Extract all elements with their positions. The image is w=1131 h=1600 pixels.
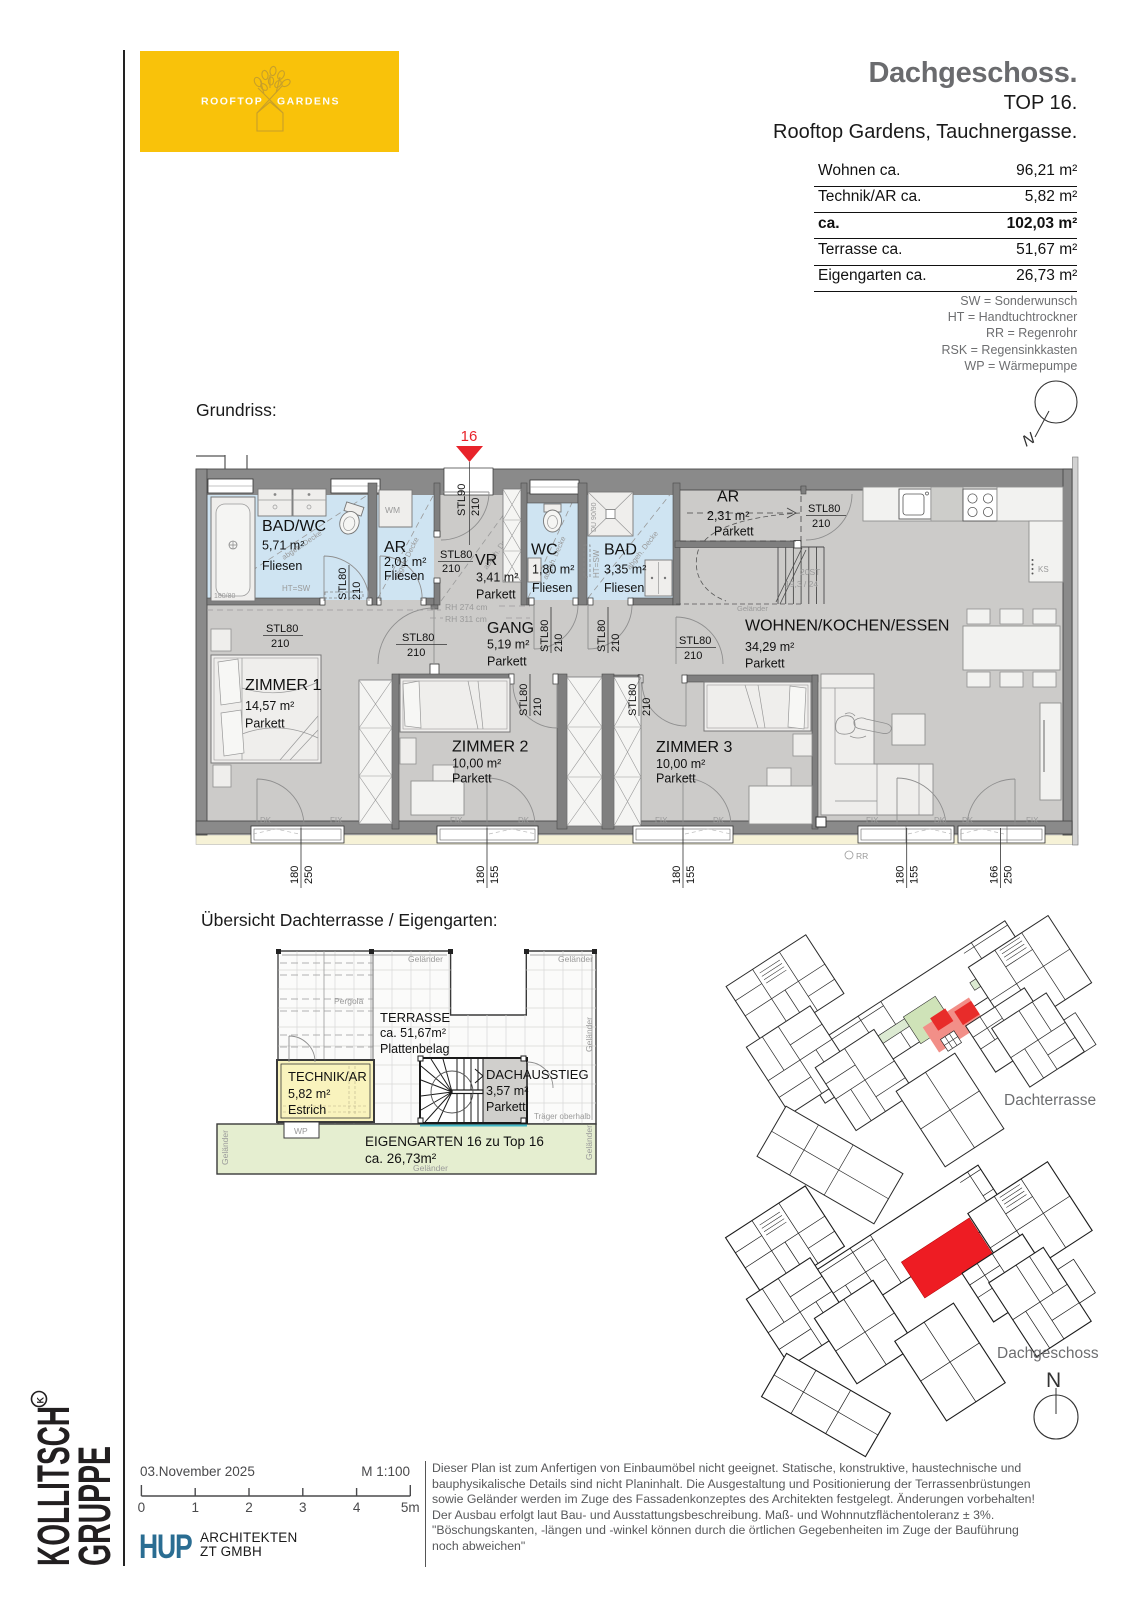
- svg-text:FIX: FIX: [450, 816, 463, 825]
- svg-text:STL90: STL90: [456, 484, 468, 516]
- svg-text:STL80: STL80: [337, 568, 349, 600]
- svg-text:STL80: STL80: [266, 623, 298, 635]
- svg-text:166: 166: [989, 866, 1001, 884]
- svg-text:155: 155: [909, 866, 921, 884]
- svg-text:STL80: STL80: [808, 503, 840, 515]
- svg-text:GRUPPE: GRUPPE: [69, 1446, 120, 1566]
- svg-text:AR: AR: [384, 539, 406, 556]
- svg-text:180: 180: [289, 866, 301, 884]
- svg-text:AR: AR: [717, 489, 739, 506]
- svg-text:250: 250: [303, 866, 315, 884]
- svg-text:STL80: STL80: [596, 620, 608, 652]
- svg-text:10,00 m²: 10,00 m²: [656, 757, 705, 771]
- svg-text:DK: DK: [518, 816, 530, 825]
- svg-text:STL80: STL80: [402, 632, 434, 644]
- svg-text:VR: VR: [475, 552, 497, 569]
- svg-text:BAD/WC: BAD/WC: [262, 518, 326, 535]
- svg-text:Parkett: Parkett: [245, 717, 285, 731]
- svg-text:N: N: [1020, 430, 1039, 451]
- svg-text:155: 155: [685, 866, 697, 884]
- svg-text:STL80: STL80: [627, 684, 639, 716]
- svg-text:180/80: 180/80: [214, 593, 236, 600]
- svg-text:Plattenbelag: Plattenbelag: [380, 1042, 450, 1056]
- svg-text:FIX: FIX: [866, 816, 879, 825]
- svg-text:DACHAUSSTIEG: DACHAUSSTIEG: [486, 1067, 589, 1082]
- svg-text:WP: WP: [294, 1126, 308, 1136]
- svg-text:Parkett: Parkett: [452, 772, 492, 786]
- svg-text:HT=SW: HT=SW: [592, 549, 601, 578]
- svg-text:Geländer: Geländer: [584, 1017, 594, 1052]
- svg-text:WM: WM: [385, 505, 400, 515]
- svg-text:Parkett: Parkett: [486, 1100, 526, 1114]
- svg-text:210: 210: [532, 698, 544, 716]
- svg-text:1: 1: [191, 1500, 199, 1515]
- svg-text:250: 250: [1003, 866, 1015, 884]
- svg-text:5,82 m²: 5,82 m²: [288, 1087, 330, 1101]
- svg-text:Estrich: Estrich: [288, 1103, 326, 1117]
- svg-text:FIX: FIX: [1026, 816, 1039, 825]
- svg-text:2,01 m²: 2,01 m²: [384, 555, 426, 569]
- svg-text:Pergola: Pergola: [334, 996, 364, 1006]
- svg-text:ZIMMER 1: ZIMMER 1: [245, 677, 322, 694]
- svg-text:FIX: FIX: [655, 816, 668, 825]
- svg-text:K: K: [36, 1397, 46, 1404]
- svg-text:210: 210: [812, 518, 830, 530]
- svg-text:0: 0: [138, 1500, 145, 1515]
- svg-text:210: 210: [610, 634, 622, 652]
- svg-text:5,19 m²: 5,19 m²: [487, 638, 529, 652]
- svg-text:DK: DK: [260, 816, 272, 825]
- svg-text:DK: DK: [934, 816, 946, 825]
- svg-text:3: 3: [299, 1500, 307, 1515]
- svg-text:Fliesen: Fliesen: [262, 559, 302, 573]
- svg-text:16: 16: [461, 428, 478, 445]
- svg-text:210: 210: [470, 498, 482, 516]
- svg-text:2,31 m²: 2,31 m²: [707, 509, 749, 523]
- svg-text:EIGENGARTEN 16 zu Top 16: EIGENGARTEN 16 zu Top 16: [365, 1134, 544, 1149]
- svg-text:14,57 m²: 14,57 m²: [245, 699, 294, 713]
- svg-text:RR: RR: [856, 851, 868, 861]
- svg-text:Parkett: Parkett: [656, 772, 696, 786]
- svg-text:Geländer: Geländer: [413, 1163, 448, 1173]
- svg-text:19,3 / 24: 19,3 / 24: [785, 579, 818, 589]
- svg-text:180: 180: [671, 866, 683, 884]
- svg-text:DK: DK: [962, 816, 974, 825]
- svg-text:10,00 m²: 10,00 m²: [452, 757, 501, 771]
- svg-text:210: 210: [351, 582, 363, 600]
- svg-text:Träger oberhalb: Träger oberhalb: [534, 1112, 591, 1121]
- svg-text:Parkett: Parkett: [745, 657, 785, 671]
- svg-text:210: 210: [271, 638, 289, 650]
- svg-text:STL80: STL80: [539, 620, 551, 652]
- svg-text:GANG: GANG: [487, 620, 534, 637]
- svg-text:4: 4: [353, 1500, 361, 1515]
- svg-text:20ST: 20ST: [800, 567, 820, 577]
- svg-text:ZIMMER 3: ZIMMER 3: [656, 739, 733, 756]
- svg-text:TERRASSE: TERRASSE: [380, 1010, 450, 1025]
- svg-text:ZIMMER 2: ZIMMER 2: [452, 739, 529, 756]
- svg-text:WC: WC: [531, 542, 558, 559]
- svg-text:Geländer: Geländer: [408, 954, 443, 964]
- svg-text:KS: KS: [1038, 565, 1049, 574]
- svg-text:Geländer: Geländer: [584, 1125, 594, 1160]
- svg-text:210: 210: [641, 698, 653, 716]
- svg-text:34,29 m²: 34,29 m²: [745, 640, 794, 654]
- svg-text:HT=SW: HT=SW: [282, 584, 311, 593]
- svg-text:FIX: FIX: [330, 816, 343, 825]
- svg-text:STL80: STL80: [679, 635, 711, 647]
- svg-text:155: 155: [489, 866, 501, 884]
- svg-text:210: 210: [442, 563, 460, 575]
- svg-text:Fliesen: Fliesen: [604, 581, 644, 595]
- svg-text:BAD: BAD: [604, 542, 637, 559]
- svg-text:N: N: [1046, 1369, 1061, 1392]
- svg-text:Fliesen: Fliesen: [532, 581, 572, 595]
- svg-text:Dachgeschoss: Dachgeschoss: [997, 1345, 1099, 1362]
- svg-text:210: 210: [553, 634, 565, 652]
- svg-text:STL80: STL80: [440, 549, 472, 561]
- svg-text:3,41 m²: 3,41 m²: [476, 571, 518, 585]
- svg-text:1,80 m²: 1,80 m²: [532, 563, 574, 577]
- svg-text:Dachterrasse: Dachterrasse: [1004, 1092, 1096, 1109]
- svg-text:DU 90/90: DU 90/90: [591, 502, 598, 532]
- svg-text:Geländer: Geländer: [220, 1130, 230, 1165]
- svg-text:Geländer: Geländer: [558, 954, 593, 964]
- svg-text:5,71 m²: 5,71 m²: [262, 539, 304, 553]
- svg-text:Parkett: Parkett: [487, 655, 527, 669]
- svg-text:3,35 m²: 3,35 m²: [604, 563, 646, 577]
- svg-text:2: 2: [245, 1500, 253, 1515]
- svg-text:210: 210: [407, 647, 425, 659]
- svg-text:Parkett: Parkett: [476, 588, 516, 602]
- svg-text:RH 274 cm: RH 274 cm: [445, 602, 488, 612]
- svg-text:ca. 51,67m²: ca. 51,67m²: [380, 1026, 446, 1040]
- svg-text:180: 180: [475, 866, 487, 884]
- svg-text:5m: 5m: [401, 1500, 420, 1515]
- svg-text:Geländer: Geländer: [737, 604, 768, 613]
- svg-text:WOHNEN/KOCHEN/ESSEN: WOHNEN/KOCHEN/ESSEN: [745, 618, 949, 635]
- svg-text:Fliesen: Fliesen: [384, 569, 424, 583]
- svg-text:STL80: STL80: [518, 684, 530, 716]
- svg-text:DK: DK: [713, 816, 725, 825]
- svg-text:TECHNIK/AR: TECHNIK/AR: [288, 1069, 367, 1084]
- svg-text:180: 180: [895, 866, 907, 884]
- svg-text:Parkett: Parkett: [714, 525, 754, 539]
- svg-text:3,57 m²: 3,57 m²: [486, 1084, 528, 1098]
- svg-text:210: 210: [684, 650, 702, 662]
- svg-text:RH 311 cm: RH 311 cm: [445, 614, 487, 624]
